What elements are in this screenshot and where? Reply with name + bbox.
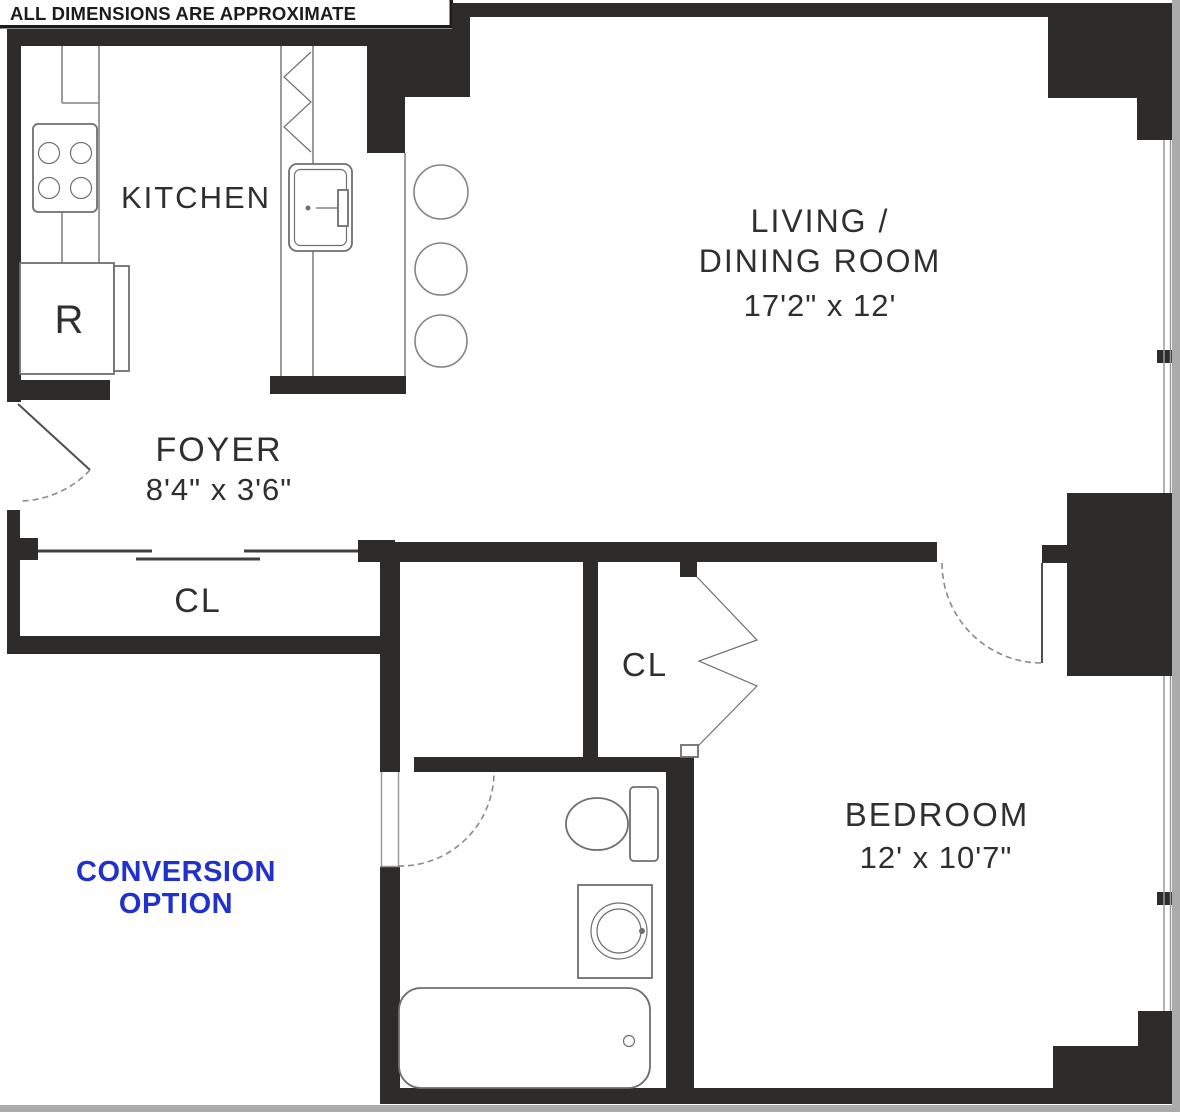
bedroom-door-swing-arc <box>942 563 1042 663</box>
wall-bath-top <box>414 757 668 772</box>
bathroom-faucet-dot <box>639 928 645 934</box>
wall-corner-block <box>367 46 470 97</box>
wall-bath-bedroom-divider <box>666 757 694 1104</box>
refrigerator-label: R <box>55 298 86 342</box>
wall-kitchen-bottom-right <box>270 376 406 394</box>
floorplan-canvas: ALL DIMENSIONS ARE APPROXIMATE <box>0 0 1180 1112</box>
bottom-edge-shadow <box>0 1105 1180 1112</box>
right-edge-shadow <box>1172 0 1180 1112</box>
toilet-bowl <box>566 798 628 850</box>
wall-closet2-jamb-top <box>680 562 697 577</box>
closet2-label: CL <box>622 646 668 683</box>
wall-left-lower <box>7 510 20 654</box>
bedroom-dimensions: 12' x 10'7" <box>860 840 1013 875</box>
stove <box>33 124 97 212</box>
wall-left-upper <box>7 29 21 402</box>
bedroom-label: BEDROOM <box>845 796 1030 833</box>
entry-door-swing-arc <box>21 470 90 501</box>
stool <box>414 165 468 219</box>
folding-pantry-icon <box>284 52 311 152</box>
stool <box>415 243 467 295</box>
refrigerator-side <box>114 266 129 371</box>
wall-hallway <box>358 542 937 562</box>
toilet-tank <box>630 787 658 861</box>
wall-closet1-jamb-left <box>7 538 38 560</box>
wall-bedroom-door-jamb <box>1042 545 1069 563</box>
wall-top-kitchen <box>7 29 470 46</box>
wall-top-right-step <box>1137 3 1172 140</box>
bathroom-fixtures <box>399 787 658 1088</box>
wall-closet2-left <box>583 542 598 772</box>
closet1-label: CL <box>174 582 221 620</box>
foyer-dimensions: 8'4" x 3'6" <box>146 472 293 507</box>
closet2-bifold-jamb <box>681 745 698 757</box>
wall-bath-left-lower <box>380 866 400 1104</box>
disclaimer-box: ALL DIMENSIONS ARE APPROXIMATE <box>0 0 453 29</box>
conversion-option-label-line1: CONVERSION <box>76 856 276 888</box>
closet2-bifold-door <box>697 577 757 746</box>
wall-bath-left-upper <box>380 558 400 772</box>
faucet-dot <box>306 206 311 211</box>
living-label-line2: DINING ROOM <box>699 243 941 279</box>
disclaimer-text: ALL DIMENSIONS ARE APPROXIMATE <box>10 3 356 24</box>
living-dimensions: 17'2" x 12' <box>744 288 897 323</box>
disclaimer-underline <box>0 25 453 29</box>
bathroom-door-opening <box>380 772 400 867</box>
wall-right-middle-block <box>1067 493 1172 676</box>
stool <box>415 315 467 367</box>
wall-kitchen-divider <box>367 97 405 153</box>
faucet-icon <box>338 190 348 226</box>
foyer-label: FOYER <box>155 431 282 469</box>
wall-closet1-bottom <box>7 636 395 654</box>
bathtub <box>399 988 650 1088</box>
bathroom-door-swing-arc <box>398 772 494 866</box>
floor-plan: ALL DIMENSIONS ARE APPROXIMATE <box>0 0 1180 1112</box>
entry-door-leaf <box>18 404 90 470</box>
wall-kitchen-bottom-left <box>18 380 110 400</box>
living-label-line1: LIVING / <box>751 203 890 239</box>
kitchen-label: KITCHEN <box>121 180 271 215</box>
conversion-option-label-line2: OPTION <box>119 888 233 920</box>
